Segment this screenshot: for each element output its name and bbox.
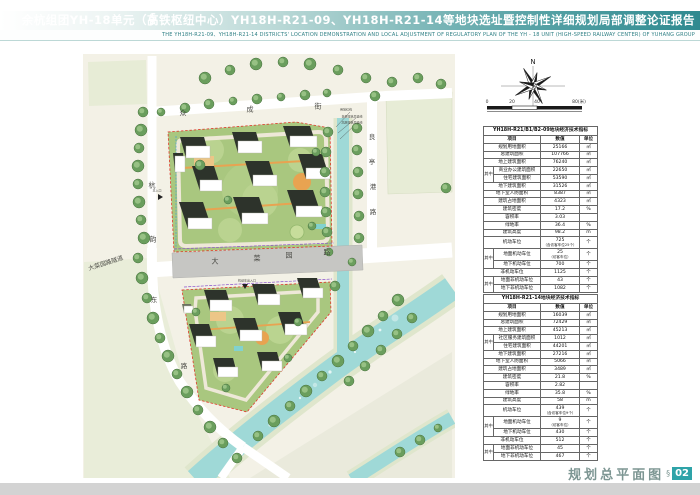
table-cell: 总建筑面积 <box>484 319 541 327</box>
table-cell: 个 <box>580 276 598 284</box>
table-cell: 单位 <box>580 304 598 312</box>
table-cell: 个 <box>580 437 598 445</box>
table-cell: YH18H-R21/B1/B2-09地块经济技术指标 <box>484 127 598 136</box>
site-plan-illustration <box>83 54 455 478</box>
table-cell: 容积率 <box>484 213 541 221</box>
table-cell: 其中 <box>484 335 494 351</box>
table-cell: 其中 <box>484 249 494 269</box>
table-cell: ㎡ <box>580 327 598 335</box>
page-number-badge: 02 <box>672 467 692 480</box>
table-cell: 467 <box>541 452 580 460</box>
table-cell <box>580 213 598 221</box>
scale-bar: 0 20 40 80(米) <box>481 96 593 118</box>
table-cell: 建筑高度 <box>484 397 541 405</box>
table-cell-note: （访客车位） <box>542 255 578 259</box>
table-cell: 建筑占地面积 <box>484 198 541 206</box>
table-cell: 地下非机动车位 <box>494 284 541 292</box>
table-cell: ㎡ <box>580 358 598 366</box>
table-cell: 建筑占地面积 <box>484 366 541 374</box>
table-cell: % <box>580 389 598 397</box>
table-cell: 27216 <box>541 350 580 358</box>
table-cell: ㎡ <box>580 190 598 198</box>
table-cell: ㎡ <box>580 198 598 206</box>
table-cell: 个 <box>580 417 598 429</box>
table-cell: 72429 <box>541 319 580 327</box>
table-cell: 3.03 <box>541 213 580 221</box>
table-cell: ㎡ <box>580 167 598 175</box>
table-cell: 个 <box>580 249 598 261</box>
table-cell: 44201 <box>541 342 580 350</box>
table-cell: 机动车位 <box>484 237 541 249</box>
table-cell-note: （含访客车位25个） <box>542 243 578 247</box>
table-cell: 53590 <box>541 174 580 182</box>
table-cell: 地下建筑面积 <box>484 350 541 358</box>
table-cell: ㎡ <box>580 159 598 167</box>
table-cell: ㎡ <box>580 311 598 319</box>
table-cell: 机动车位 <box>484 405 541 417</box>
table-cell: YH18H-R21-14地块经济技术指标 <box>484 295 598 304</box>
svg-text:0: 0 <box>486 99 489 105</box>
table-cell: 项目 <box>484 136 541 144</box>
table-cell: 其中 <box>484 444 494 460</box>
table-cell: 其中 <box>484 276 494 292</box>
table-cell: 数值 <box>541 304 580 312</box>
table-cell: 其中 <box>484 417 494 437</box>
table-cell: ㎡ <box>580 182 598 190</box>
table-cell: % <box>580 221 598 229</box>
table-cell: 地上建筑面积 <box>484 159 541 167</box>
table-cell: 1082 <box>541 284 580 292</box>
table-cell: 地面非机动车位 <box>494 276 541 284</box>
table-cell: 住宅建筑面积 <box>494 174 541 182</box>
table-cell: 25（访客车位） <box>541 249 580 261</box>
table-cell: 地下机动车位 <box>494 429 541 437</box>
table-cell: 8387 <box>541 190 580 198</box>
table-cell: 建筑密度 <box>484 374 541 382</box>
table-cell: 个 <box>580 444 598 452</box>
table-cell: 地面非机动车位 <box>494 444 541 452</box>
table-cell: 规划用地面积 <box>484 143 541 151</box>
table-cell: 725（含访客车位25个） <box>541 237 580 249</box>
site-south-plaza <box>210 312 226 321</box>
table-cell: 商业办公建筑面积 <box>494 167 541 175</box>
table-cell: 4323 <box>541 198 580 206</box>
table-cell: 个 <box>580 429 598 437</box>
svg-text:20: 20 <box>509 99 515 105</box>
drawing-title: 规划总平面图 <box>568 464 664 483</box>
table-cell: ㎡ <box>580 342 598 350</box>
table-cell: 绿地率 <box>484 221 541 229</box>
table-cell-note: （访客车位） <box>542 423 578 427</box>
table-cell: 容积率 <box>484 381 541 389</box>
table-cell: ㎡ <box>580 174 598 182</box>
table-cell: 36.4 <box>541 221 580 229</box>
table-cell: ㎡ <box>580 350 598 358</box>
table-cell: 地下室人防面积 <box>484 190 541 198</box>
table-cell: 5066 <box>541 358 580 366</box>
table-cell: 其中 <box>484 167 494 183</box>
table-cell: m <box>580 397 598 405</box>
table-cell: 个 <box>580 261 598 269</box>
page-title: 余杭组团YH-18单元（高铁枢纽中心）YH18H-R21-09、YH18H-R2… <box>22 11 695 30</box>
footer-section-icon: § <box>666 469 670 478</box>
footer: 规划总平面图 § 02 <box>568 464 692 483</box>
table-cell: m <box>580 229 598 237</box>
table-cell: 16039 <box>541 311 580 319</box>
parcel-northeast <box>386 92 452 194</box>
table-cell: 17.2 <box>541 206 580 214</box>
table-cell: 58 <box>541 397 580 405</box>
table-cell: 地下非机动车位 <box>494 452 541 460</box>
table-cell: 地下建筑面积 <box>484 182 541 190</box>
table-cell: 3489 <box>541 366 580 374</box>
table-cell: 地下室人防面积 <box>484 358 541 366</box>
svg-text:40: 40 <box>534 99 540 105</box>
table-cell: 单位 <box>580 136 598 144</box>
table-cell: % <box>580 206 598 214</box>
table-cell: 个 <box>580 452 598 460</box>
table-cell: 76240 <box>541 159 580 167</box>
banner-rule <box>0 40 700 41</box>
table-cell: 22650 <box>541 167 580 175</box>
table-cell <box>580 381 598 389</box>
table-cell: 512 <box>541 437 580 445</box>
site-north-green-circle <box>290 225 304 239</box>
table-cell: ㎡ <box>580 366 598 374</box>
table-cell: 430 <box>541 429 580 437</box>
table-cell: 21.8 <box>541 374 580 382</box>
table-cell: 建筑密度 <box>484 206 541 214</box>
table-cell: 建筑高度 <box>484 229 541 237</box>
table-cell: 数值 <box>541 136 580 144</box>
table-cell: ㎡ <box>580 143 598 151</box>
tech-indicators-table-north: YH18H-R21/B1/B2-09地块经济技术指标项目数值单位规划用地面积25… <box>483 126 598 293</box>
table-cell: ㎡ <box>580 319 598 327</box>
table-cell: 住宅建筑面积 <box>494 342 541 350</box>
table-cell: 43 <box>541 276 580 284</box>
table-cell: 45 <box>541 444 580 452</box>
parcel-northwest <box>88 60 147 106</box>
table-cell: 地下机动车位 <box>494 261 541 269</box>
bottom-band <box>0 483 700 495</box>
tech-indicators-table-south: YH18H-R21-14地块经济技术指标项目数值单位规划用地面积16039㎡总建… <box>483 294 598 461</box>
table-cell: 25166 <box>541 143 580 151</box>
table-cell: 绿地率 <box>484 389 541 397</box>
table-cell: 个 <box>580 269 598 277</box>
section-logo-icon: § <box>148 10 156 28</box>
table-cell-note: （含访客车位9个） <box>542 411 578 415</box>
table-cell: 规划用地面积 <box>484 311 541 319</box>
table-cell: 社区服务建筑面积 <box>494 335 541 343</box>
title-banner: 余杭组团YH-18单元（高铁枢纽中心）YH18H-R21-09、YH18H-R2… <box>0 11 700 30</box>
report-page: 余杭组团YH-18单元（高铁枢纽中心）YH18H-R21-09、YH18H-R2… <box>0 0 700 495</box>
table-cell: 个 <box>580 237 598 249</box>
page-subtitle-en: THE YH18H-R21-09、YH18H-R21-14 DISTRICTS'… <box>162 31 695 38</box>
site-south-pool <box>234 346 243 351</box>
table-cell: % <box>580 374 598 382</box>
table-cell: 700 <box>541 261 580 269</box>
table-cell: 1012 <box>541 335 580 343</box>
table-cell: 地上建筑面积 <box>484 327 541 335</box>
table-cell: ㎡ <box>580 151 598 159</box>
table-cell: 个 <box>580 405 598 417</box>
table-cell: 地面机动车位 <box>494 249 541 261</box>
svg-text:80(米): 80(米) <box>572 98 586 105</box>
title-banner-subtitle: THE YH18H-R21-09、YH18H-R21-14 DISTRICTS'… <box>0 30 700 40</box>
table-cell: 31526 <box>541 182 580 190</box>
table-cell: 项目 <box>484 304 541 312</box>
table-cell: 2.82 <box>541 381 580 389</box>
compass-north-label: N <box>530 58 535 66</box>
table-cell: 45213 <box>541 327 580 335</box>
table-cell: 非机动车位 <box>484 437 541 445</box>
table-cell: 107766 <box>541 151 580 159</box>
table-cell: ㎡ <box>580 335 598 343</box>
table-cell: 35.8 <box>541 389 580 397</box>
table-cell: 总建筑面积 <box>484 151 541 159</box>
table-cell: 439（含访客车位9个） <box>541 405 580 417</box>
table-cell: 9（访客车位） <box>541 417 580 429</box>
table-cell: 非机动车位 <box>484 269 541 277</box>
table-cell: 98.2 <box>541 229 580 237</box>
table-cell: 地面机动车位 <box>494 417 541 429</box>
table-cell: 1125 <box>541 269 580 277</box>
table-cell: 个 <box>580 284 598 292</box>
